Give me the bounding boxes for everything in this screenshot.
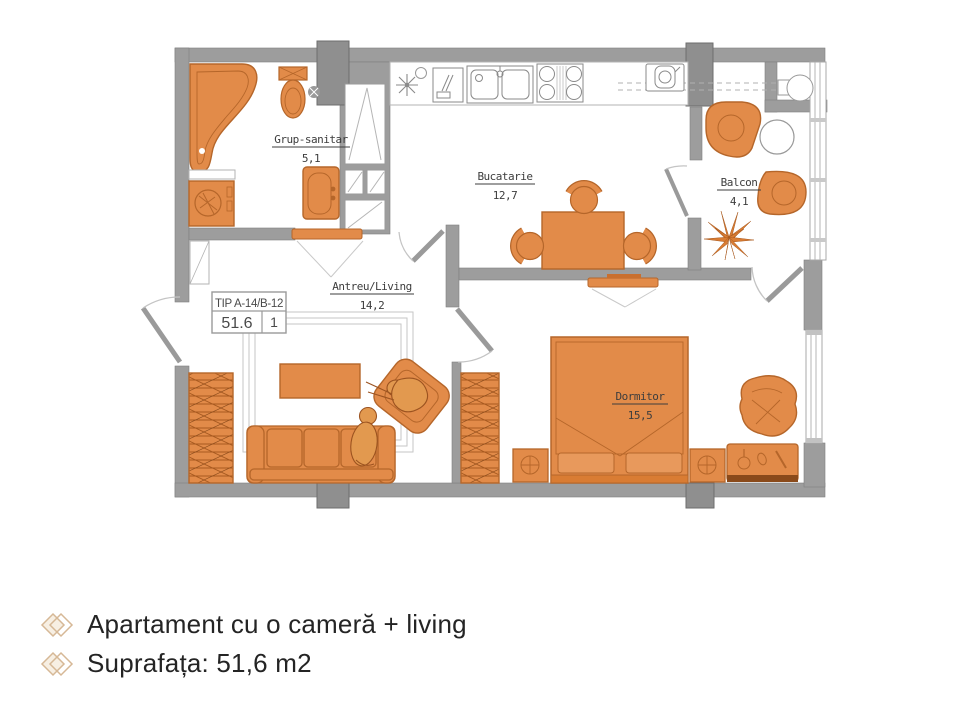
dishwasher [433,68,463,102]
room-name: Dormitor [616,390,666,403]
apartment-count-value: 1 [270,314,278,330]
bed [551,337,688,483]
balcony-armchair [758,171,806,214]
page: Grup-sanitar 5,1 Bucatarie 12,7 Antreu/L… [0,0,953,720]
diamond-logo-icon [40,608,74,642]
nightstand [513,449,548,482]
room-area: 12,7 [493,189,518,202]
apartment-area-value: 51.6 [221,315,252,332]
apartment-title: Apartament cu o cameră + living [87,609,467,640]
bedroom-door [457,309,492,362]
apartment-type-label: TIP A-14/B-12 [215,298,283,310]
bedroom-sliding-door [588,274,658,307]
bedroom-window [806,330,822,443]
living-furniture [189,241,454,483]
room-name: Grup-sanitar [274,133,348,146]
label-balcony: Balcon 4,1 [717,176,761,208]
ceiling-lamp-icon [416,68,427,79]
info-box: TIP A-14/B-12 51.6 1 [212,292,286,333]
room-name: Antreu/Living [332,280,412,293]
apartment-surface: Suprafața: 51,6 m2 [87,648,312,679]
stove [537,64,583,102]
room-area: 14,2 [360,299,385,312]
kitchen-balcony-door [666,166,687,216]
plant [704,211,754,260]
caption-row-surface: Suprafața: 51,6 m2 [40,645,467,682]
storage-bench [727,444,798,482]
bedroom-armchair [740,376,797,436]
caption-row-title: Apartament cu o cameră + living [40,606,467,643]
shower-unit [345,84,385,230]
coffee-table [280,364,360,398]
toilet [279,67,307,118]
caption-block: Apartament cu o cameră + living Suprafaț… [40,606,467,682]
room-area: 4,1 [730,195,748,208]
kitchen-sink [467,66,533,103]
dining-chair [514,231,544,261]
label-hall-living: Antreu/Living 14,2 [330,280,414,312]
bathroom-sink [303,167,339,219]
nightstand [690,449,725,482]
bathtub-drain [199,148,205,154]
vent-icon [396,74,418,96]
wardrobe [189,373,233,483]
bathroom-sliding-door [292,229,363,277]
room-area: 5,1 [302,152,320,165]
entrance-door [143,297,180,362]
water-heater [646,64,684,91]
dining-table [514,184,653,269]
wardrobe [461,373,499,483]
hall-closet [190,241,209,284]
room-area: 15,5 [628,409,653,422]
balcony-armchair [706,102,761,157]
balcony-door [752,267,802,301]
balcony-lamp [778,75,813,101]
dining-chair [569,184,599,213]
windows [806,62,826,443]
hall-kitchen-door [399,231,443,261]
washing-machine [189,181,234,226]
room-name: Bucatarie [477,170,532,183]
balcony-table [760,120,794,154]
vent-fan-icon [308,86,320,98]
label-kitchen: Bucatarie 12,7 [475,170,535,202]
label-bathroom: Grup-sanitar 5,1 [272,133,350,165]
room-name: Balcon [721,176,758,189]
diamond-logo-icon [40,647,74,681]
bathtub [190,64,257,172]
bath-shelf [189,170,235,179]
dining-chair [624,231,654,261]
